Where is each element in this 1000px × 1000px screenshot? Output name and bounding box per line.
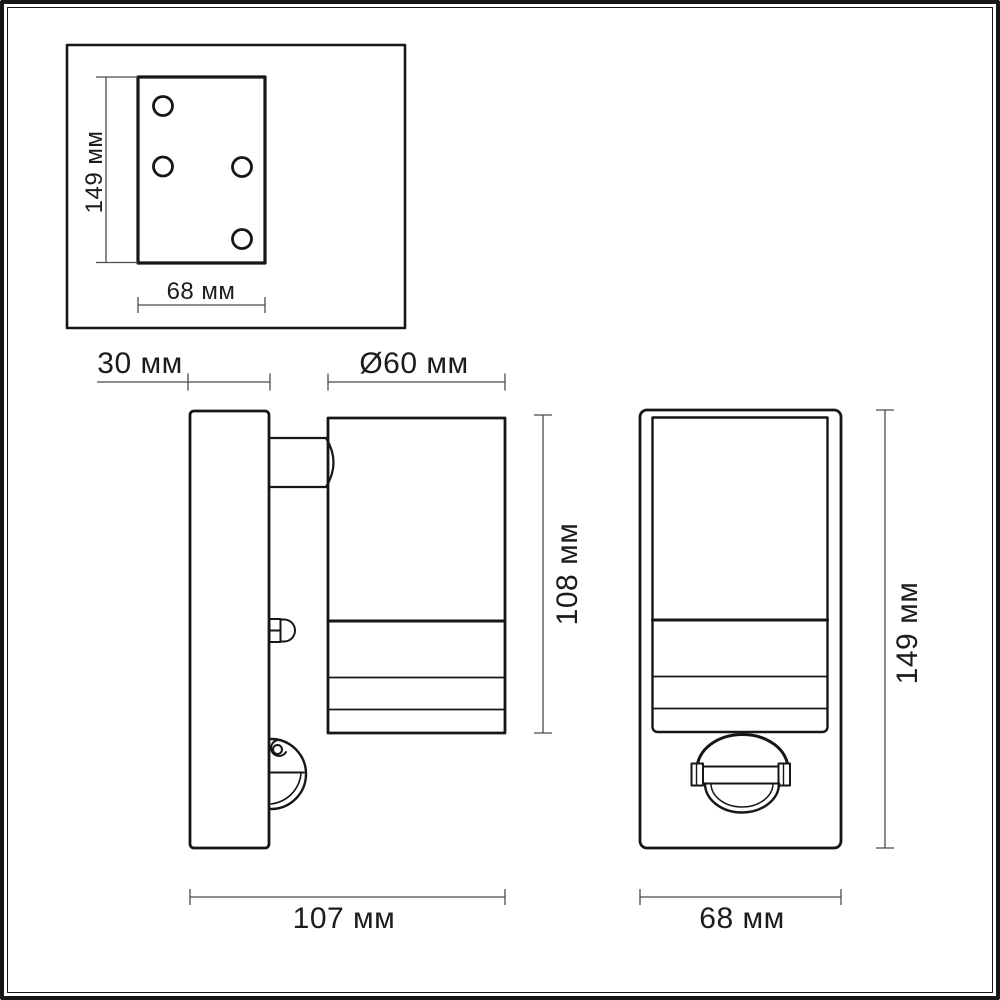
- plate-depth-label: 30 мм: [97, 347, 182, 380]
- plate-width-label: 68 мм: [167, 278, 236, 305]
- sensor-screw: [273, 745, 282, 754]
- body-diameter-dimension: Ø60 мм: [328, 347, 505, 391]
- sensor-lower-dome-outer: [705, 784, 779, 813]
- sensor-band-front: [703, 767, 782, 784]
- knob-cap: [281, 620, 296, 642]
- screw-hole: [154, 97, 173, 116]
- front-width-label: 68 мм: [699, 902, 784, 935]
- wall-plate-front: [640, 410, 841, 848]
- plate-height-dimension: 149 мм: [81, 77, 138, 263]
- sensor-clip-right: [779, 764, 791, 786]
- front-height-label: 149 мм: [891, 582, 924, 685]
- motion-sensor-front: [692, 735, 791, 813]
- lamp-body-side: [328, 418, 505, 733]
- plate-height-label: 149 мм: [81, 131, 108, 214]
- sensor-clip-left: [692, 764, 704, 786]
- plate-width-dimension: 68 мм: [138, 278, 265, 313]
- screw-hole: [233, 158, 252, 177]
- plate-depth-dimension: 30 мм: [97, 347, 270, 391]
- inset-border: [67, 45, 405, 328]
- body-height-label: 108 мм: [551, 523, 584, 626]
- mounting-plate: [138, 77, 265, 263]
- page-frame: [2, 2, 998, 998]
- screw-hole: [154, 157, 173, 176]
- sensor-dome-front: [697, 735, 788, 770]
- body-diameter-label: Ø60 мм: [359, 347, 468, 380]
- lamp-body-front: [653, 418, 828, 733]
- dimension-line: [534, 415, 552, 733]
- overall-depth-dimension: 107 мм: [190, 889, 505, 935]
- lamp-dimension-drawing: 149 мм 68 мм: [0, 0, 1000, 1000]
- mounting-arm: [269, 438, 334, 487]
- body-height-dimension: 108 мм: [534, 415, 584, 733]
- overall-depth-label: 107 мм: [293, 902, 396, 935]
- mounting-plate-view: 149 мм 68 мм: [67, 45, 405, 328]
- inner-frame-border: [8, 8, 993, 993]
- front-width-dimension: 68 мм: [640, 889, 841, 935]
- motion-sensor-side: [271, 739, 306, 809]
- front-height-dimension: 149 мм: [876, 410, 924, 848]
- outer-frame-border: [2, 2, 998, 998]
- arm-outline: [269, 438, 326, 487]
- front-view: [640, 410, 841, 848]
- adjustment-knob: [270, 619, 296, 642]
- side-view: [190, 411, 505, 848]
- sensor-lower-dome-inner: [711, 784, 773, 807]
- screw-hole: [233, 230, 252, 249]
- wall-plate-side: [190, 411, 269, 848]
